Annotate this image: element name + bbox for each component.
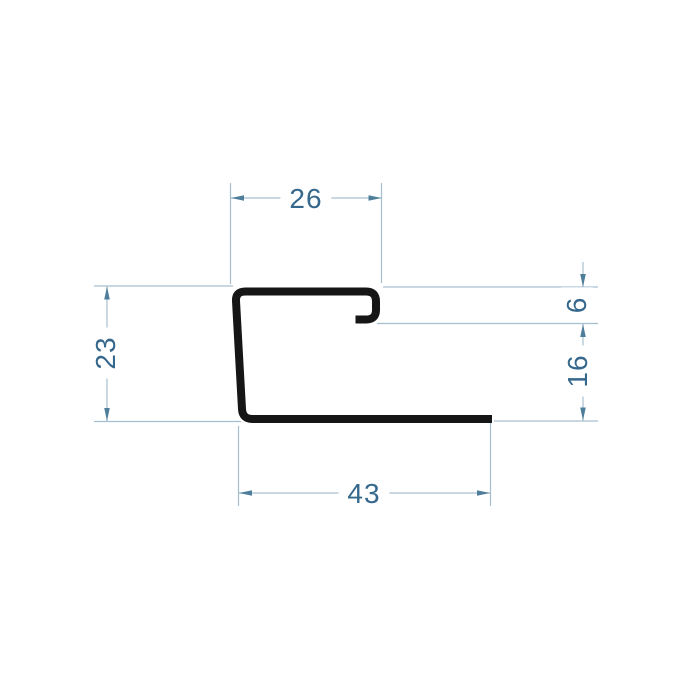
profile-outline <box>236 292 492 420</box>
dimension-arrowheads <box>104 195 586 496</box>
arrowhead-23-top <box>104 287 110 300</box>
arrowhead-26-right <box>369 195 382 201</box>
arrowhead-23-bottom <box>104 408 110 421</box>
technical-drawing-canvas: 26 23 6 16 43 <box>0 0 700 700</box>
arrowhead-43-left <box>239 490 252 496</box>
arrowhead-16-top <box>580 324 586 337</box>
arrowhead-16-bottom <box>580 408 586 421</box>
dimension-lines <box>107 198 583 493</box>
extension-lines <box>94 183 598 506</box>
arrowhead-43-right <box>477 490 490 496</box>
dimension-label-top-width: 26 <box>280 183 331 215</box>
arrowhead-26-left <box>231 195 244 201</box>
dimension-label-right-height: 16 <box>562 345 594 396</box>
arrowhead-6-top <box>580 274 586 287</box>
dimension-label-lip-depth: 6 <box>561 288 593 323</box>
dimension-label-left-height: 23 <box>90 327 122 378</box>
dimension-label-bottom-width: 43 <box>338 478 389 510</box>
